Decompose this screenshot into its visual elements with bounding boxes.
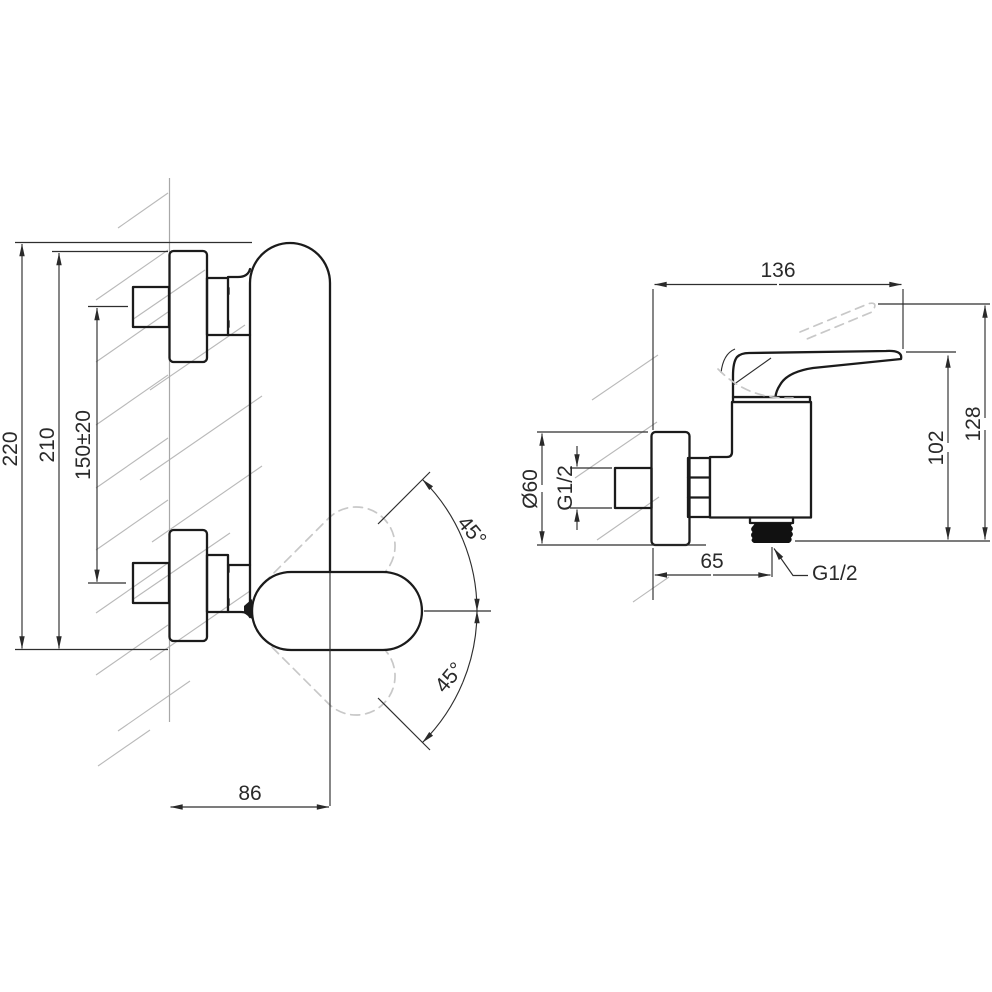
- lever-handle: [733, 351, 901, 397]
- body-outline-front: [710, 402, 811, 518]
- inlet-pipe-front: [615, 468, 652, 508]
- dim-swing-down-label: 45°: [431, 658, 469, 697]
- handle-side: [252, 572, 422, 650]
- adapter-top: [207, 278, 228, 335]
- swing-axis-up: [378, 472, 430, 524]
- dim-body-height-label: 102: [925, 430, 948, 465]
- dim-height-to-escutcheon-label: 210: [36, 427, 59, 462]
- dim-escutcheon-diameter: Ø60: [519, 432, 706, 545]
- dim-overall-width-label: 136: [760, 259, 795, 282]
- side-view: 45° 45° 220: [0, 178, 491, 807]
- escutcheon-top: [170, 251, 208, 362]
- dim-outlet-thread-label: G1/2: [812, 562, 858, 585]
- dim-swing-up-label: 45°: [453, 512, 491, 551]
- handle-hub-wedge: [244, 599, 252, 619]
- nut-flats: [688, 478, 710, 498]
- dim-outlet-offset-label: 65: [700, 550, 723, 573]
- connection-nut: [688, 458, 710, 517]
- body-outline-side: [250, 243, 330, 602]
- dim-outlet-offset: 65: [655, 550, 771, 575]
- dim-height-with-lever: 128: [962, 306, 985, 540]
- swing-arc-up-end: [463, 540, 477, 611]
- dim-height-with-lever-label: 128: [962, 406, 985, 441]
- dim-inlet-spacing-label: 150±20: [72, 410, 95, 480]
- escutcheon-front: [652, 432, 690, 545]
- dim-inlet-spacing: 150±20: [72, 308, 97, 582]
- dim-inlet-thread-label: G1/2: [554, 465, 577, 511]
- dim-depth-from-wall-label: 86: [238, 782, 261, 805]
- swing-axis-down: [378, 698, 430, 750]
- dim-depth-from-wall: 86: [171, 782, 330, 807]
- dim-overall-height: 220: [0, 244, 22, 649]
- dim-overall-width: 136: [655, 259, 902, 285]
- front-view: 136 Ø60 G1/2 65 G1/2: [519, 259, 990, 602]
- drawing-sheet: 45° 45° 220: [0, 0, 992, 992]
- adapter-bottom: [207, 555, 228, 612]
- faucet-dimension-drawing: 45° 45° 220: [0, 0, 992, 992]
- joint-top: [228, 269, 250, 335]
- outlet-thread-callout: G1/2: [774, 549, 858, 586]
- dim-body-height: 102: [925, 356, 948, 540]
- dim-escutcheon-diameter-label: Ø60: [519, 469, 542, 509]
- wall-hatch-front: [575, 355, 669, 602]
- wall-hatch: [96, 193, 262, 766]
- outlet-knurled-nut: [751, 523, 793, 543]
- dim-height-to-escutcheon: 210: [36, 253, 59, 649]
- dim-overall-height-label: 220: [0, 431, 22, 466]
